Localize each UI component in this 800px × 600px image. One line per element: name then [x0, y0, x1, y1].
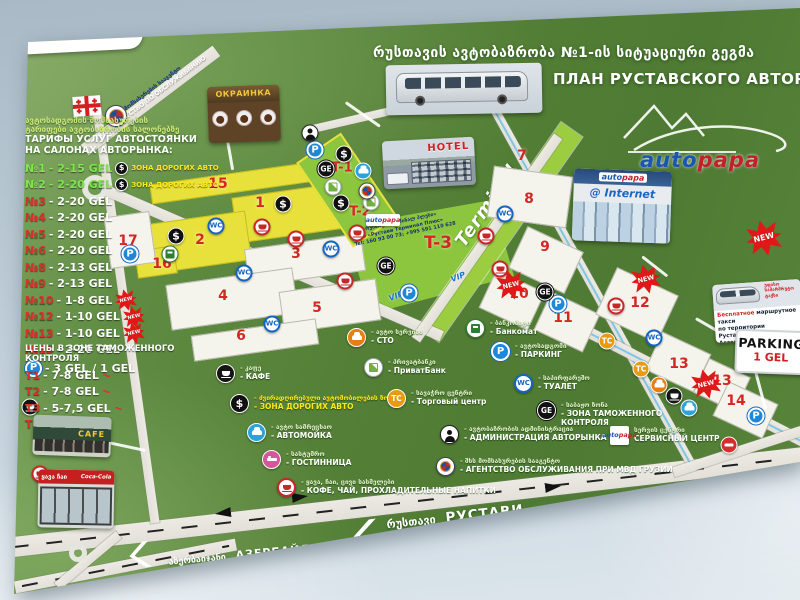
admin-icon — [302, 125, 319, 142]
dollar-icon: $ — [115, 162, 128, 175]
kiosk-sign: ყავა ჩაი Coca-Cola — [38, 469, 114, 484]
legend-label-ru: - ПАРКИНГ — [515, 350, 566, 359]
sto-icon — [651, 377, 668, 394]
legend-label-ka: - სასტუმრო — [286, 450, 351, 458]
legend-item-atm: - ბანკომატი- Банкомат — [466, 319, 537, 338]
person-shape — [308, 129, 313, 134]
minibus-windows-shape — [405, 76, 521, 89]
plot-number: 5 — [312, 300, 322, 316]
legend-label-ka: - სავაჭრო ცენტრი — [411, 389, 486, 397]
tariff-row: №12- 1-10 GELNEW — [25, 309, 215, 326]
customs-row-label: T3 — [25, 402, 40, 415]
privat-icon — [364, 358, 383, 377]
autopapa-logo: autopapa — [616, 96, 800, 174]
tariff-row-label: №1 — [25, 162, 46, 175]
rustavi-label-ka: რუსთავი — [386, 513, 437, 531]
tariff-row: №10- 1-8 GELNEW — [25, 292, 215, 309]
dollar-icon: $ — [115, 178, 128, 191]
tbilisi-label-ka: თბილისი — [618, 485, 671, 504]
poster-title-georgian: რუსთავის ავტობაზრობა №1-ის სიტუაციური გე… — [373, 45, 754, 61]
tariff-row-price: - 2-20 GEL — [49, 178, 112, 191]
legend-label-ka: - შსს მომსახურების სააგენტო — [460, 457, 673, 465]
wc-icon: WC — [646, 330, 663, 347]
azerbaijan-label-ka: აზერბაიჯანი — [168, 553, 226, 568]
shuttle-ka-text: უფასო სამარშრუტო ტაქსი — [764, 281, 799, 300]
parking-icon: P — [491, 342, 510, 361]
legend-label-ru: - АГЕНТСТВО ОБСЛУЖИВАНИЯ ПРИ МВД ГРУЗИИ — [460, 465, 673, 474]
admin-icon — [440, 425, 459, 444]
legend-label-ru: - ЗОНА ТАМОЖЕННОГО КОНТРОЛЯ — [561, 409, 691, 427]
autopapa-mountain-car-sketch — [616, 96, 800, 154]
coffee-icon — [277, 478, 296, 497]
legend-label-ru: - ПриватБанк — [388, 366, 446, 375]
parking-icon: P — [748, 408, 765, 425]
parking-icon: P — [307, 142, 324, 159]
sto-icon — [347, 328, 366, 347]
roundabout-small — [69, 544, 87, 562]
legend-item-cafe: - კაფე- КАФЕ — [216, 364, 270, 383]
wc-icon: WC — [514, 374, 533, 393]
legend-item-parking: P- ავტოსადგომი- ПАРКИНГ — [491, 342, 566, 361]
shuttle-body-shape — [715, 286, 760, 305]
plot-number: T-3 — [424, 233, 452, 253]
coffee-icon — [349, 225, 366, 242]
tariff-row-label: №10 — [25, 294, 54, 307]
tariff-row-price: - 2-13 GEL — [49, 277, 112, 290]
plot-number: 4 — [218, 288, 228, 304]
rustavi-label-ru: РУСТАВИ — [445, 502, 525, 526]
tariff-row-label: №12 — [25, 310, 54, 323]
plot-number: 12 — [630, 295, 649, 311]
customs-row-price: - 7-8 GEL — [43, 369, 99, 382]
rustavi-auto-market-map-poster: 151234561617789101112131314T-1T-2T-3$$$$… — [0, 0, 800, 600]
road — [0, 446, 800, 560]
cup-shape — [258, 225, 266, 230]
tariff-row-price: - 2-15 GEL — [49, 162, 112, 175]
tariff-row-price: - 1-8 GEL — [57, 294, 113, 307]
legend-item-carwash: - ავტო სამრეცხაო- АВТОМОЙКА — [247, 423, 332, 442]
plot-number: T-1 — [331, 161, 352, 176]
azerbaijan-label-ru: АЗЕРБАЙДЖАН — [235, 539, 346, 562]
person-shape — [447, 430, 452, 435]
privat-icon — [325, 179, 342, 196]
truck-shape — [386, 172, 409, 185]
autopapa-internet-building-photo: autopapa @ Internet — [572, 168, 672, 243]
shuttle-windows-shape — [720, 289, 756, 297]
legend-item-dollar: $- ძვირადღირებული ავტომობილების ზონა- ЗО… — [230, 394, 396, 413]
tariff-header-ru-line2: НА САЛОНАХ АВТОРЫНКА: — [25, 145, 215, 156]
tariff-rows: №1- 2-15 GEL$ЗОНА ДОРОГИХ АВТО№2- 2-20 G… — [25, 160, 215, 358]
plot-number: 14 — [726, 393, 745, 409]
legend-item-text: - სასტუმრო- ГОСТИННИЦА — [286, 450, 351, 467]
minibus-photo — [386, 63, 543, 116]
kiosk-sign-ka: ყავა ჩაი — [41, 473, 67, 480]
cafe-icon — [216, 364, 235, 383]
tariff-row-label: №4 — [25, 211, 46, 224]
legend-label-ka: - საპირფარეშო — [538, 374, 590, 382]
tariff-row: №9- 2-13 GEL — [25, 276, 215, 293]
minibus-wheel-shape — [415, 96, 425, 106]
legend-item-ge: GE- საბაჟო ზონა- ЗОНА ТАМОЖЕННОГО КОНТРО… — [537, 401, 691, 427]
car-shape — [654, 383, 664, 388]
cup-shape — [482, 234, 490, 239]
legend-label-ru: - ЗОНА ДОРОГИХ АВТО — [254, 402, 396, 411]
legend-label-ru: - ТУАЛЕТ — [538, 382, 590, 391]
legend-item-text: - საბაჟო ზონა- ЗОНА ТАМОЖЕННОГО КОНТРОЛЯ — [561, 401, 691, 427]
parking-icon: P — [550, 296, 567, 313]
legend-item-privat: - პრივატბანკი- ПриватБанк — [364, 358, 446, 377]
brand-papa: papa — [619, 432, 637, 439]
plot-number: 1 — [255, 195, 265, 211]
tariff-header-ru-line1: ТАРИФЫ УСЛУГ АВТОСТОЯНКИ — [25, 134, 215, 145]
plot-number: 13 — [669, 356, 688, 372]
legend-label-ka: - პრივატბანკი — [388, 358, 446, 366]
legend-item-wc: WC- საპირფარეშო- ТУАЛЕТ — [514, 374, 590, 393]
dollar-icon: $ — [333, 195, 350, 212]
emblem-icon — [436, 457, 455, 476]
cup-shape — [670, 394, 678, 399]
atm-icon — [466, 319, 485, 338]
cup-shape — [612, 304, 620, 309]
customs-header: ЦЕНЫ В ЗОНЕ ТАМОЖЕННОГО КОНТРОЛЯ — [25, 344, 195, 364]
parking-price-sign: PARKING 1 GEL — [734, 329, 800, 375]
plate-shape — [236, 110, 253, 127]
legend-label-ka: - ავტო სერვისი — [371, 328, 423, 336]
parking-sign-price: 1 GEL — [737, 350, 800, 365]
customs-row-price: - 5-7,5 GEL — [43, 402, 110, 415]
ge-icon: GE — [378, 258, 395, 275]
legend-label-ru: - СТО — [371, 336, 423, 345]
legend-item-text: - ავტო სამრეცხაო- АВТОМОЙКА — [271, 423, 332, 440]
wc-icon: WC — [236, 265, 253, 282]
tariff-header-ka-line1: ავტოსადგომის მომსახურების — [25, 116, 215, 125]
bed-shape — [267, 458, 277, 462]
photo-of-auto-market-map-poster: 151234561617789101112131314T-1T-2T-3$$$$… — [0, 0, 800, 600]
cup-shape — [353, 231, 361, 236]
tc-icon: ТС — [387, 389, 406, 408]
customs-row-label: T1 — [25, 369, 40, 382]
tariff-row: №6- 2-20 GEL — [25, 243, 215, 260]
autopapa-icon: autopapa — [610, 426, 629, 445]
legend-label-ka: - ძვირადღირებული ავტომობილების ზონა — [254, 394, 396, 402]
tariff-zone-label: ЗОНА ДОРОГИХ АВТО — [131, 164, 219, 172]
emblem-icon — [359, 183, 376, 200]
handwritten-correction: ~ — [100, 384, 112, 399]
legend-label-ru: - КОФЕ, ЧАЙ, ПРОХЛАДИТЕЛЬНЫЕ НАПИТКИ — [301, 486, 496, 495]
plot-number: 8 — [524, 191, 534, 207]
tc-icon: ТС — [633, 361, 650, 378]
legend-label-ru: СЕРВИСНЫЙ ЦЕНТР — [634, 434, 720, 443]
tariff-row-price: - 2-20 GEL — [49, 228, 112, 241]
cafe-building-photo: CAFE — [32, 415, 111, 458]
cup-shape — [292, 237, 300, 242]
cup-shape — [283, 485, 291, 490]
coffee-icon — [288, 231, 305, 248]
shuttle-ru-free: Бесплатное — [717, 310, 755, 319]
legend-item-coffee: - ყავა, ჩაი, ცივი სასმელები- КОФЕ, ЧАЙ, … — [277, 478, 496, 497]
legend-label-ka: - საბაჟო ზონა — [561, 401, 691, 409]
coffee-kiosk-photo: ყავა ჩაი Coca-Cola — [37, 469, 114, 528]
dollar-icon: $ — [336, 146, 353, 163]
autopapa-icon: autopapa — [366, 214, 400, 226]
legend-item-sto: - ავტო სერვისი- СТО — [347, 328, 423, 347]
wc-icon: WC — [323, 241, 340, 258]
legend-label-ru: - Банкомат — [490, 327, 537, 336]
ge-icon: GE — [318, 161, 335, 178]
tariff-row-label: №6 — [25, 244, 46, 257]
tariff-row-label: №9 — [25, 277, 46, 290]
tariff-row: №2- 2-20 GEL$ЗОНА ДОРОГИХ АВТО — [25, 177, 215, 194]
tariff-row: №3- 2-20 GEL — [25, 193, 215, 210]
legend-item-bed: - სასტუმრო- ГОСТИННИЦА — [262, 450, 351, 469]
legend-item-text: სერვის ცენტრიСЕРВИСНЫЙ ЦЕНТР — [634, 426, 720, 443]
hotel-sign-label: HOTEL — [427, 141, 469, 154]
legend-item-emblem: - შსს მომსახურების სააგენტო- АГЕНТСТВО О… — [436, 457, 673, 476]
dollar-icon: $ — [275, 196, 292, 213]
cup-shape — [496, 267, 504, 272]
tariff-row: №1- 2-15 GEL$ЗОНА ДОРОГИХ АВТО — [25, 160, 215, 177]
kiosk-sign-cola: Coca-Cola — [81, 474, 112, 481]
legend-item-text: - პრივატბანკი- ПриватБанк — [388, 358, 446, 375]
parking-icon: P — [401, 285, 418, 302]
restaurant-ad-plates — [208, 109, 281, 128]
no-entry-bar-shape — [725, 444, 734, 447]
legend-item-autopapa: autopapaსერვის ცენტრიСЕРВИСНЫЙ ЦЕНТР — [610, 426, 720, 445]
privatbank-logo-shape — [369, 363, 378, 372]
cup-shape — [222, 371, 230, 376]
tariff-zone-label: ЗОНА ДОРОГИХ АВТО — [131, 181, 219, 189]
car-shape — [358, 169, 368, 174]
legend-item-text: - სავაჭრო ცენტრი- Торговый центр — [411, 389, 486, 406]
customs-row: T2- 7-8 GEL~ — [25, 384, 195, 401]
plot-number: 9 — [540, 239, 550, 255]
minibus-wheel-shape — [497, 94, 507, 104]
quick-sale-salon-callout: სწრაფი გაყიდვების სალონი Салон срочных п… — [0, 0, 143, 56]
legend-label-ka: - კაფე — [240, 364, 270, 372]
parking-tariff-board: ავტოსადგომის მომსახურების ტარიფები ავტობ… — [25, 116, 215, 377]
dollar-icon: $ — [230, 394, 249, 413]
tariff-header-ka-line2: ტარიფები ავტობაზრობის სალონებზე — [25, 125, 215, 134]
legend-item-text: - ძვირადღირებული ავტომობილების ზონა- ЗОН… — [254, 394, 396, 411]
carwash-icon — [247, 423, 266, 442]
tariff-row: №5- 2-20 GEL — [25, 226, 215, 243]
legend-label-ka: - ბანკომატი — [490, 319, 537, 327]
tariff-row-price: - 2-13 GEL — [49, 261, 112, 274]
wc-icon: WC — [264, 316, 281, 333]
legend-item-text: - ავტოსადგომი- ПАРКИНГ — [515, 342, 566, 359]
coffee-icon — [254, 219, 271, 236]
tc-icon: ТС — [599, 333, 616, 350]
customs-row-price: - 7-8 GEL — [43, 385, 99, 398]
autopapa-wordmark: autopapa — [640, 148, 760, 172]
hotel-building-shape — [411, 159, 472, 184]
legend-item-admin: - ავტობაზრობის ადმინისტრაცია- АДМИНИСТРА… — [440, 425, 607, 444]
brand-auto: auto — [602, 432, 619, 439]
coffee-icon — [608, 298, 625, 315]
poster-wrap: 151234561617789101112131314T-1T-2T-3$$$$… — [0, 0, 800, 600]
tariff-row-label: №8 — [25, 261, 46, 274]
legend-label-ru: - ГОСТИННИЦА — [286, 458, 351, 467]
carwash-icon — [355, 163, 372, 180]
tariff-row-label: №3 — [25, 195, 46, 208]
handwritten-correction: ~ — [112, 401, 124, 416]
bed-icon — [262, 450, 281, 469]
legend-label-ru: - АВТОМОЙКА — [271, 431, 332, 440]
atm-shape — [471, 324, 480, 333]
legend-label-ru: - АДМИНИСТРАЦИЯ АВТОРЫНКА — [464, 433, 607, 442]
customs-row: T3- 5-7,5 GEL~ — [25, 400, 195, 417]
minibus-body-shape — [396, 71, 529, 103]
brand-auto: auto — [366, 217, 383, 224]
tariff-row-price: - 2-20 GEL — [49, 244, 112, 257]
parking-sign-word: PARKING — [737, 335, 800, 352]
salon-label-ka: სწრაფი გაყიდვების სალონი — [7, 3, 133, 18]
restaurant-ad-title: ОКРАИНКА — [207, 85, 280, 104]
plate-shape — [212, 111, 229, 128]
noentry-icon — [721, 437, 738, 454]
tariff-row: №8- 2-13 GEL — [25, 259, 215, 276]
legend-label-ka: - ავტო სამრეცხაო — [271, 423, 332, 431]
legend-label-ru: - Торговый центр — [411, 397, 486, 406]
hotel-photo: HOTEL — [382, 137, 476, 190]
emblem-shield-shape — [440, 461, 451, 472]
tariff-row-price: - 1-10 GEL — [57, 327, 120, 340]
customs-row-label: T2 — [25, 385, 40, 398]
legend-label-ka: - ავტოსადგომი — [515, 342, 566, 350]
ge-icon: GE — [537, 401, 556, 420]
legend-item-text: - შსს მომსახურების სააგენტო- АГЕНТСТВО О… — [460, 457, 673, 474]
legend-item-tc: ТС- სავაჭრო ცენტრი- Торговый центр — [387, 389, 486, 408]
poster-title-russian: ПЛАН РУСТАВСКОГО АВТОРЫНКА №1 — [553, 70, 800, 88]
car-shape — [352, 335, 362, 340]
legend-item-text: - ყავა, ჩაი, ცივი სასმელები- КОФЕ, ЧАЙ, … — [301, 478, 496, 495]
car-shape — [252, 430, 262, 435]
internet-building-glass — [572, 201, 671, 243]
tariff-row-price: - 1-10 GEL — [57, 310, 120, 323]
wc-icon: WC — [497, 206, 514, 223]
legend-label-ka: - ყავა, ჩაი, ცივი სასმელები — [301, 478, 496, 486]
tariff-row-label: №13 — [25, 327, 54, 340]
tariff-row-price: - 2-20 GEL — [49, 211, 112, 224]
legend-label-ka: სერვის ცენტრი — [634, 426, 720, 434]
kiosk-glass-shape — [40, 486, 113, 525]
brand-papa: papa — [622, 173, 645, 183]
legend-item-text: - ბანკომატი- Банкомат — [490, 319, 537, 336]
brand-papa: papa — [382, 217, 400, 224]
tariff-row-price: - 2-20 GEL — [49, 195, 112, 208]
plate-shape — [260, 109, 277, 126]
wordmark-auto: auto — [640, 148, 698, 172]
handwritten-correction: ~ — [100, 368, 112, 383]
coffee-icon — [337, 273, 354, 290]
legend-item-text: - საპირფარეშო- ТУАЛЕТ — [538, 374, 590, 391]
tariff-row-label: №2 — [25, 178, 46, 191]
tariff-row: №13- 1-10 GELNEW — [25, 325, 215, 342]
emblem-shield-shape — [362, 186, 373, 197]
coffee-icon — [478, 228, 495, 245]
cup-shape — [341, 279, 349, 284]
tariff-row: №4- 2-20 GEL — [25, 210, 215, 227]
cafe-doors-shape — [34, 439, 108, 454]
legend-item-text: - ავტო სერვისი- СТО — [371, 328, 423, 345]
customs-row: T1- 7-8 GEL~ — [25, 367, 195, 384]
tariff-row-label: №5 — [25, 228, 46, 241]
cafe-sign-label: CAFE — [78, 429, 105, 439]
legend-item-text: - ავტობაზრობის ადმინისტრაცია- АДМИНИСТРА… — [464, 425, 607, 442]
salon-label-ru-line2: продаж — [8, 22, 134, 40]
legend-item-text: - კაფე- КАФЕ — [240, 364, 270, 381]
legend-label-ru: - КАФЕ — [240, 372, 270, 381]
restaurant-ad-photo: ОКРАИНКА — [207, 85, 281, 143]
plot-number: 3 — [291, 246, 301, 262]
plot-number: 7 — [517, 148, 527, 164]
wordmark-papa: papa — [698, 148, 760, 172]
coffee-icon — [492, 261, 509, 278]
privatbank-logo-shape — [329, 183, 338, 192]
plot-number: 6 — [236, 328, 246, 344]
internet-sign-label: @ Internet — [573, 183, 671, 202]
ge-icon: GE — [537, 284, 554, 301]
salon-label-ru-line1: Салон срочных — [7, 11, 133, 29]
